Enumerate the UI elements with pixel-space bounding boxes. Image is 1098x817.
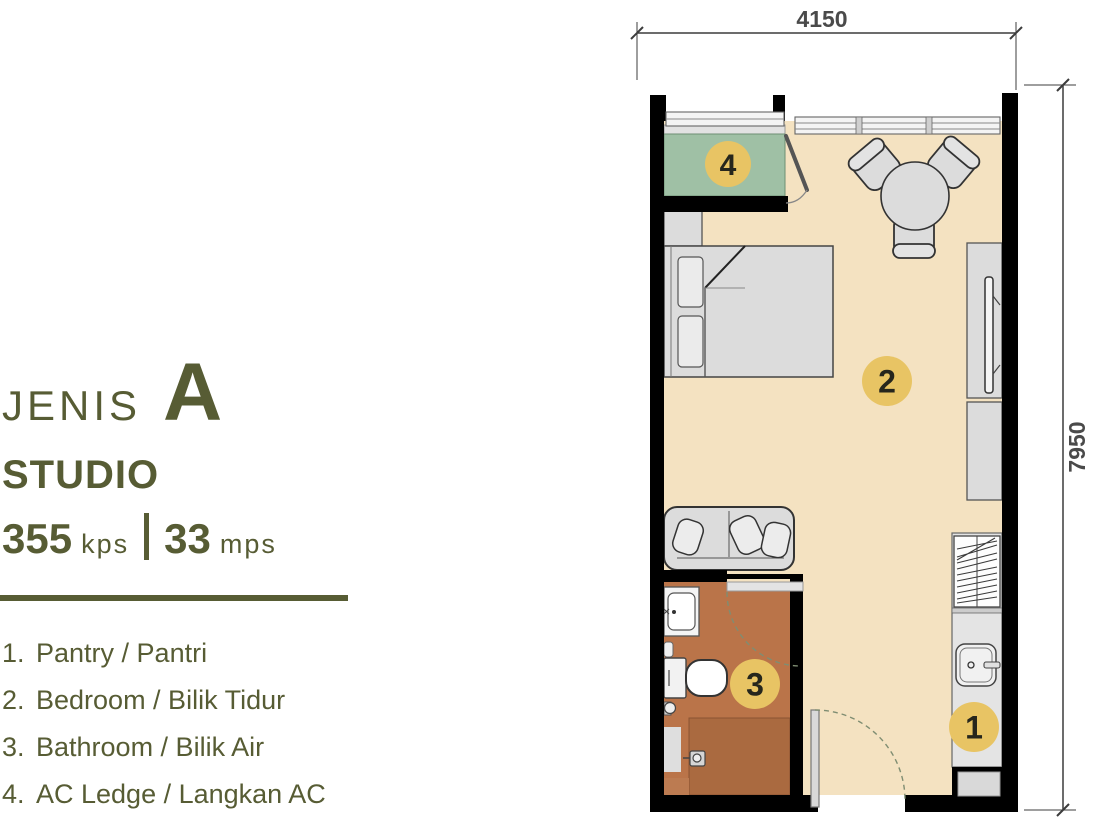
bathroom-step bbox=[664, 778, 689, 795]
window-mullion bbox=[856, 117, 862, 134]
main-window bbox=[795, 117, 1000, 134]
pillow bbox=[678, 257, 703, 307]
counter-divider bbox=[952, 608, 1002, 613]
bottom-wall-left bbox=[650, 795, 818, 812]
bed bbox=[664, 246, 833, 377]
room-marker-bedroom: 2 bbox=[862, 356, 912, 406]
room-marker-number: 4 bbox=[720, 149, 737, 182]
dish-rack bbox=[954, 536, 1000, 607]
window-mullion bbox=[926, 117, 932, 134]
tv-console bbox=[967, 243, 1002, 500]
room-marker-number: 2 bbox=[878, 364, 896, 400]
bathroom-sink bbox=[664, 587, 699, 636]
floor-plan: 4 2 3 1 4150 bbox=[0, 0, 1098, 817]
dimension-width: 4150 bbox=[631, 6, 1022, 90]
kitchen-sink bbox=[956, 644, 1000, 686]
top-wall-pier-left bbox=[650, 95, 666, 121]
round-table bbox=[881, 162, 949, 230]
room-marker-pantry: 1 bbox=[949, 702, 999, 752]
tv bbox=[985, 277, 993, 393]
soap-holder bbox=[664, 642, 673, 657]
entry-door-leaf bbox=[811, 710, 819, 807]
room-marker-number: 1 bbox=[965, 710, 983, 746]
entry-threshold bbox=[958, 772, 1000, 796]
bathroom-niche bbox=[664, 727, 681, 772]
faucet bbox=[984, 662, 1000, 668]
room-marker-ac-ledge: 4 bbox=[705, 141, 751, 187]
ac-ledge-wall bbox=[664, 196, 788, 212]
pillow bbox=[678, 316, 703, 367]
sofa bbox=[664, 507, 794, 570]
toilet bbox=[664, 658, 727, 698]
nightstand bbox=[664, 211, 702, 246]
dimension-width-label: 4150 bbox=[796, 6, 847, 32]
right-wall bbox=[1002, 93, 1018, 812]
unit-poster: JENIS A STUDIO 355 kps 33 mps 1. Pantry … bbox=[0, 0, 1098, 817]
bathroom-right-wall bbox=[790, 578, 803, 795]
room-marker-number: 3 bbox=[746, 667, 764, 703]
bathroom-top-wall bbox=[650, 570, 727, 582]
dimension-height-label: 7950 bbox=[1064, 421, 1090, 472]
ac-ledge-window bbox=[666, 112, 784, 126]
left-wall bbox=[650, 95, 664, 812]
dimension-height: 7950 bbox=[1024, 79, 1090, 816]
room-marker-bathroom: 3 bbox=[730, 659, 780, 709]
